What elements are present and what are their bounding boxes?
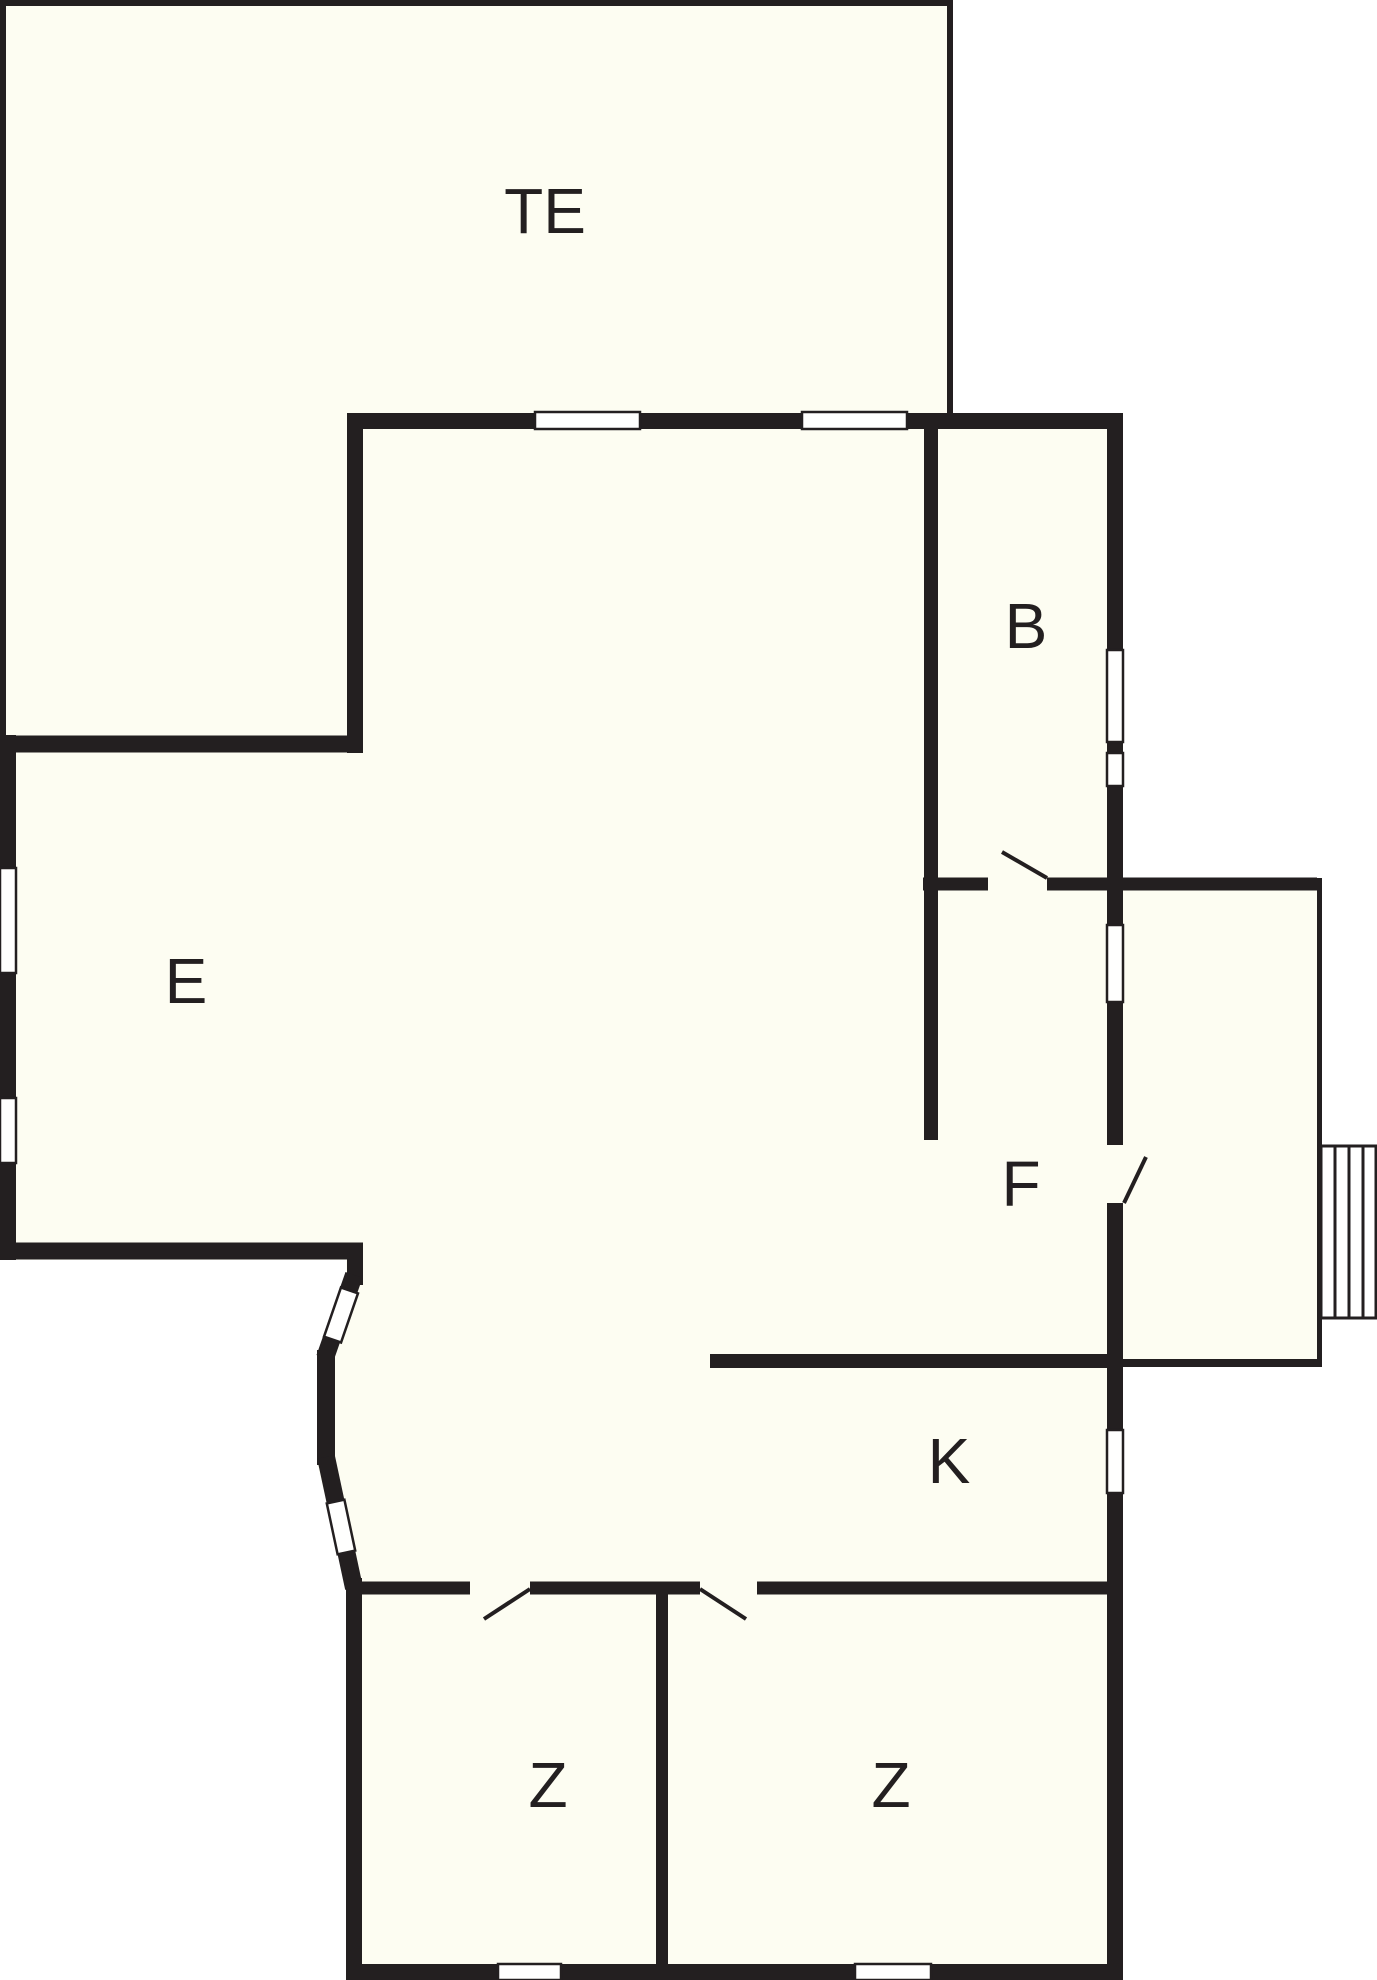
room-label-kitchen: K <box>928 1425 971 1497</box>
window-bathroom-2 <box>1107 753 1123 786</box>
room-label-bathroom: B <box>1005 590 1048 662</box>
door-gap-extension <box>1106 1145 1124 1203</box>
room-label-living: E <box>165 945 208 1017</box>
room-label-bedroom-left: Z <box>528 1749 567 1821</box>
room-label-hall: F <box>1001 1148 1040 1220</box>
exterior-stairs <box>1321 1146 1377 1318</box>
window-e-left-2 <box>0 1098 16 1163</box>
room-label-bedroom-right: Z <box>871 1749 910 1821</box>
window-e-left-1 <box>0 868 16 973</box>
window-bathroom-1 <box>1107 650 1123 742</box>
window-bottom-1 <box>498 1964 561 1980</box>
window-bottom-2 <box>855 1964 931 1980</box>
floor-plan: TE B E F K Z Z <box>0 0 1377 1980</box>
window-top-1 <box>535 412 640 429</box>
window-top-2 <box>802 412 907 429</box>
window-hall <box>1107 925 1123 1002</box>
room-label-terrace: TE <box>504 175 586 247</box>
door-gap-bathroom <box>988 876 1047 893</box>
window-kitchen <box>1107 1430 1123 1493</box>
